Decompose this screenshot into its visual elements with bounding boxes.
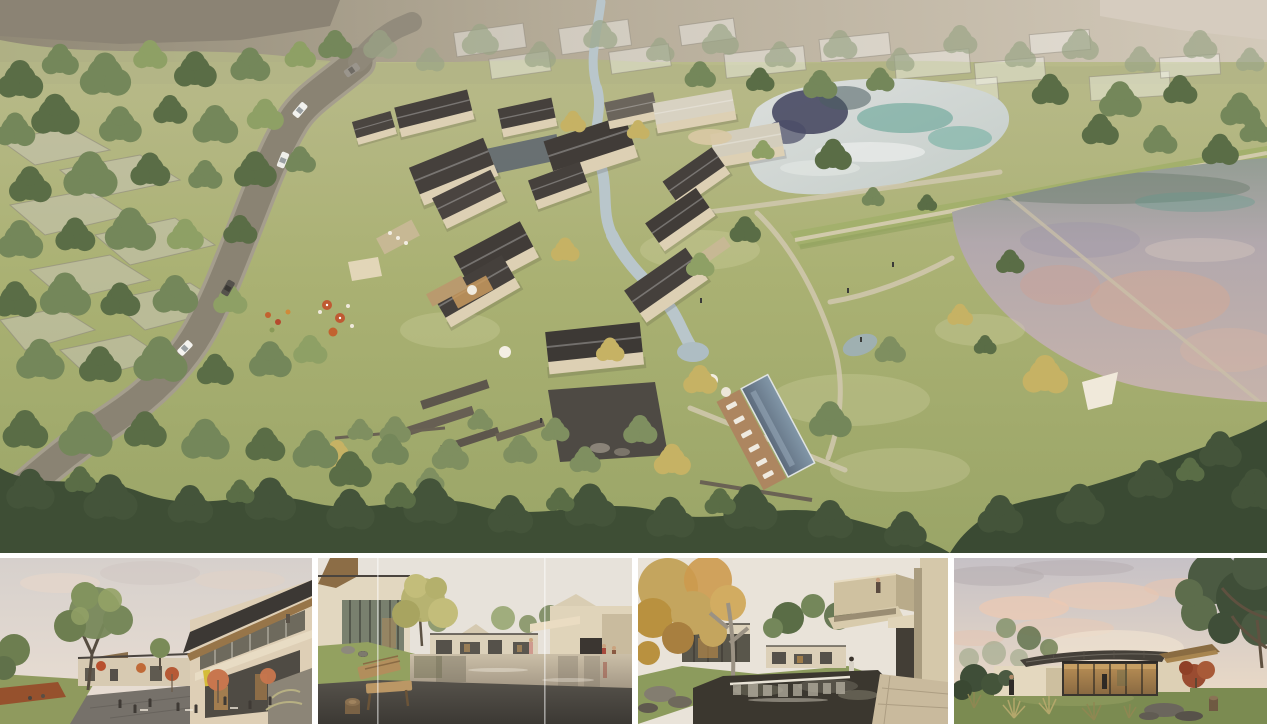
umbrella <box>96 661 106 671</box>
water-courtyard-view <box>318 558 632 724</box>
log-stool <box>345 698 360 714</box>
thumbnail-row <box>0 558 1267 724</box>
aerial-svg <box>0 0 1267 553</box>
pond-terrace-view <box>638 558 948 724</box>
center-pavilions <box>766 646 846 668</box>
stream-pond <box>677 342 709 362</box>
foreground-deck <box>318 680 632 724</box>
sand-play-area <box>688 129 732 145</box>
tree-stump <box>1209 696 1218 711</box>
terrace-umbrella <box>467 285 477 295</box>
figure-pink <box>529 642 533 654</box>
umbrella <box>136 663 146 673</box>
aerial-masterplan-view <box>0 0 1267 553</box>
balcony-figure <box>876 582 881 593</box>
glass-joint-line <box>377 558 379 724</box>
stone-paving <box>872 674 948 724</box>
walking-figure <box>1009 675 1014 695</box>
interior-figure <box>1102 674 1107 689</box>
glass-joint-line <box>544 558 546 724</box>
garden-pavilion-view <box>954 558 1267 724</box>
plaza-cafe-view <box>0 558 312 724</box>
terrace-umbrella <box>499 346 511 358</box>
presentation-board <box>0 0 1267 724</box>
koi-pond <box>693 670 886 724</box>
pool-umbrella <box>721 387 731 397</box>
